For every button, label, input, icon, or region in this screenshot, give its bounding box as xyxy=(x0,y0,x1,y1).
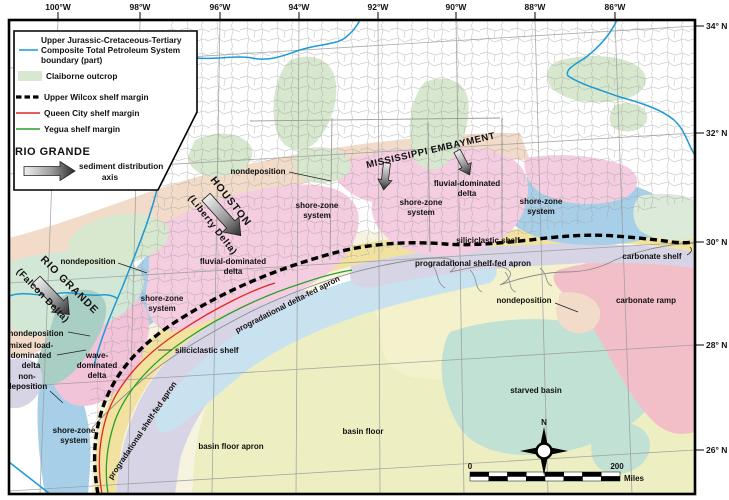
label-shore-zone-mid-2: system xyxy=(407,208,435,217)
label-shore-zone-center-1: shore-zone xyxy=(296,201,339,210)
legend-queen-city-label: Queen City shelf margin xyxy=(44,108,139,118)
label-nondeposition-houston: nondeposition xyxy=(230,167,285,176)
legend-sediment-label-2: axis xyxy=(102,172,119,182)
legend-sediment-label-1: sediment distribution xyxy=(79,161,163,171)
lon-label: 92°W xyxy=(368,2,390,12)
latitude-labels: 34° N 32° N 30° N 28° N 26° N xyxy=(706,21,727,455)
label-wave-delta-3: delta xyxy=(88,371,107,380)
map-canvas: nondeposition MISSISSIPPI EMBAYMENT fluv… xyxy=(0,0,729,500)
scale-max: 200 xyxy=(610,462,624,471)
legend-wilcox-label: Upper Wilcox shelf margin xyxy=(44,92,149,102)
label-nondeposition-left: nondeposition xyxy=(8,329,63,338)
label-starved-basin: starved basin xyxy=(510,386,562,395)
label-shore-zone-center-2: system xyxy=(303,211,331,220)
lon-label: 98°W xyxy=(130,2,152,12)
legend-yegua-label: Yegua shelf margin xyxy=(44,124,120,134)
lon-label: 86°W xyxy=(605,2,627,12)
label-mixed-load-1: mixed load- xyxy=(9,341,54,350)
label-prograd-shelf-fed-east: progradational shelf-fed apron xyxy=(415,259,531,268)
label-wave-delta-2: dominated xyxy=(77,361,118,370)
legend-tps-label-3: boundary (part) xyxy=(41,55,103,65)
legend: Upper Jurassic-Cretaceous-Tertiary Compo… xyxy=(14,31,197,190)
longitude-labels: 100°W 98°W 96°W 94°W 92°W 90°W 88°W 86°W xyxy=(45,2,626,12)
scale-zero: 0 xyxy=(468,462,473,471)
label-fluvial-delta-ms-1: fluvial-dominated xyxy=(434,179,500,188)
legend-claiborne-swatch-icon xyxy=(18,71,42,81)
label-shore-zone-mid-1: shore-zone xyxy=(400,198,443,207)
lon-label: 96°W xyxy=(210,2,232,12)
lon-label: 90°W xyxy=(446,2,468,12)
label-siliciclastic-shelf-center: siliciclastic shelf xyxy=(456,236,520,245)
lon-label: 88°W xyxy=(525,2,547,12)
label-shore-zone-left-2: system xyxy=(148,304,176,313)
lat-label: 32° N xyxy=(706,128,727,138)
label-shore-zone-east-1: shore-zone xyxy=(520,197,563,206)
lat-label: 34° N xyxy=(706,21,727,31)
lat-label: 28° N xyxy=(706,340,727,350)
legend-tps-label-2: Composite Total Petroleum System xyxy=(41,45,180,55)
label-fluvial-delta-ms-2: delta xyxy=(458,189,477,198)
label-carbonate-shelf: carbonate shelf xyxy=(622,252,681,261)
label-fluvial-delta-houston-1: fluvial-dominated xyxy=(200,257,266,266)
label-nondeposition-rio: nondeposition xyxy=(60,257,115,266)
label-shore-zone-east-2: system xyxy=(527,207,555,216)
lat-label: 30° N xyxy=(706,237,727,247)
lat-label: 26° N xyxy=(706,445,727,455)
label-siliciclastic-shelf-left: siliciclastic shelf xyxy=(175,346,239,355)
lon-label: 100°W xyxy=(45,2,72,12)
legend-claiborne-label: Claiborne outcrop xyxy=(46,71,117,81)
label-fluvial-delta-houston-2: delta xyxy=(224,267,243,276)
label-shore-zone-sw-1: shore-zone xyxy=(53,426,96,435)
label-mixed-load-2: dominated xyxy=(11,351,52,360)
geologic-map-figure: nondeposition MISSISSIPPI EMBAYMENT fluv… xyxy=(0,0,729,500)
label-basin-floor-apron: basin floor apron xyxy=(198,442,263,451)
label-shore-zone-left-1: shore-zone xyxy=(141,294,184,303)
label-carbonate-ramp: carbonate ramp xyxy=(616,296,676,305)
label-non-deposition-1: non- xyxy=(18,372,36,381)
legend-rio-grande-title: RIO GRANDE xyxy=(15,146,90,158)
lon-label: 94°W xyxy=(289,2,311,12)
label-non-deposition-2: deposition xyxy=(7,382,48,391)
label-shore-zone-sw-2: system xyxy=(60,436,88,445)
label-mixed-load-3: delta xyxy=(22,361,41,370)
legend-tps-label-1: Upper Jurassic-Cretaceous-Tertiary xyxy=(41,35,182,45)
label-basin-floor: basin floor xyxy=(343,427,384,436)
label-nondeposition-offshore: nondeposition xyxy=(496,296,551,305)
scale-unit: Miles xyxy=(624,474,645,483)
label-wave-delta-1: wave- xyxy=(85,351,109,360)
compass-north-label: N xyxy=(541,418,547,427)
